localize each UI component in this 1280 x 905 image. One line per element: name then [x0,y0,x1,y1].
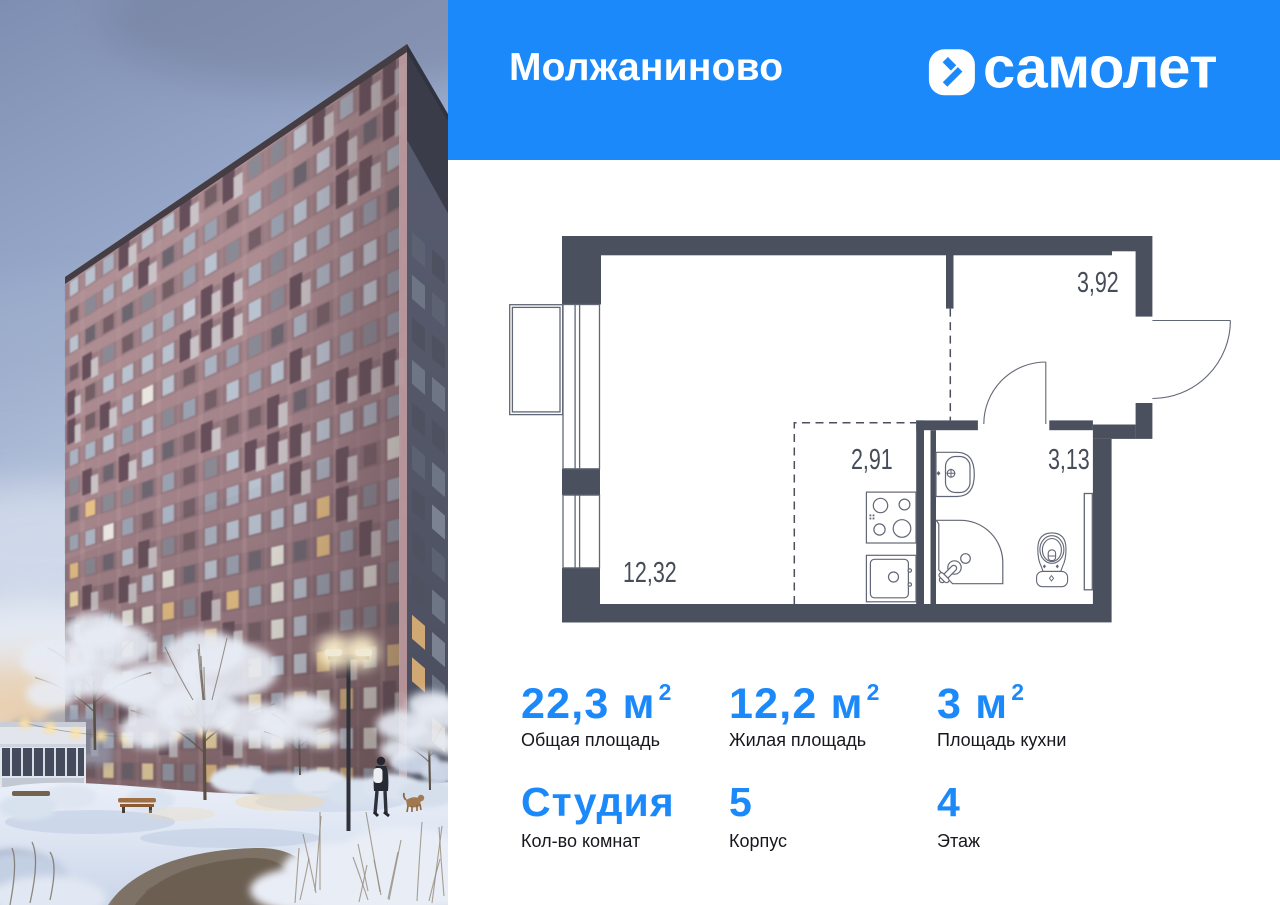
svg-text:2,91: 2,91 [851,444,893,476]
svg-text:12,32: 12,32 [623,557,677,589]
svg-text:3,92: 3,92 [1077,267,1119,299]
svg-text:3,13: 3,13 [1048,444,1090,476]
svg-text:самолет: самолет [983,46,1216,98]
